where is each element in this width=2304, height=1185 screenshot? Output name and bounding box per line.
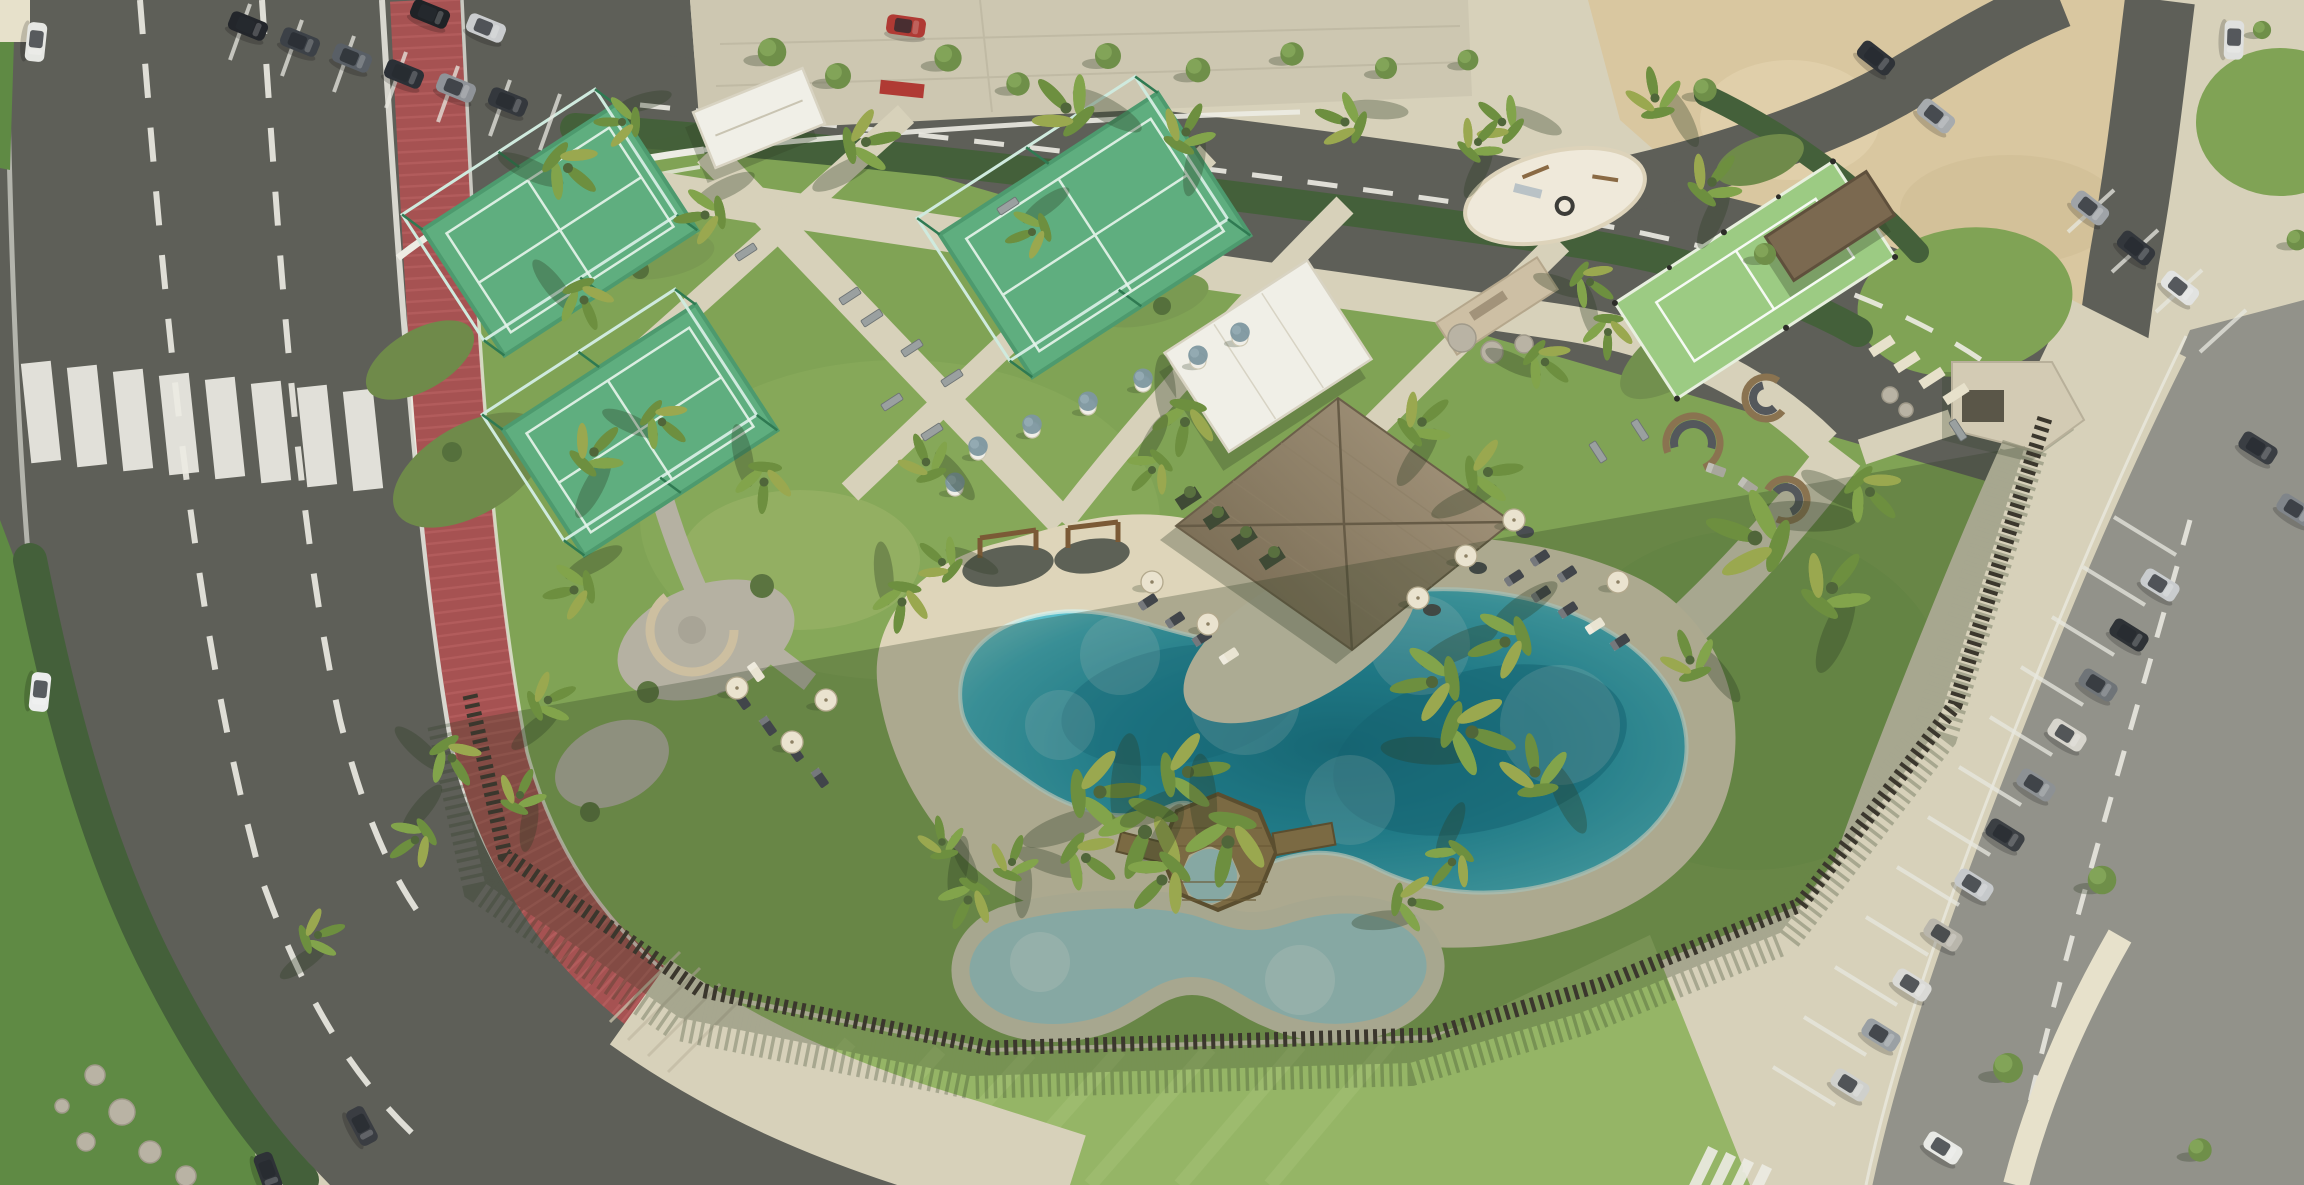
scene-svg xyxy=(0,0,2304,1185)
boulder xyxy=(77,1133,95,1151)
boulder xyxy=(139,1141,161,1163)
boulder xyxy=(1899,403,1913,417)
boulder xyxy=(1448,324,1476,352)
car xyxy=(2218,19,2245,61)
boulder xyxy=(55,1099,69,1113)
boulder xyxy=(109,1099,135,1125)
boulder xyxy=(1882,387,1898,403)
boulder xyxy=(85,1065,105,1085)
boulder xyxy=(176,1166,196,1185)
aerial-resort-scene xyxy=(0,0,2304,1185)
